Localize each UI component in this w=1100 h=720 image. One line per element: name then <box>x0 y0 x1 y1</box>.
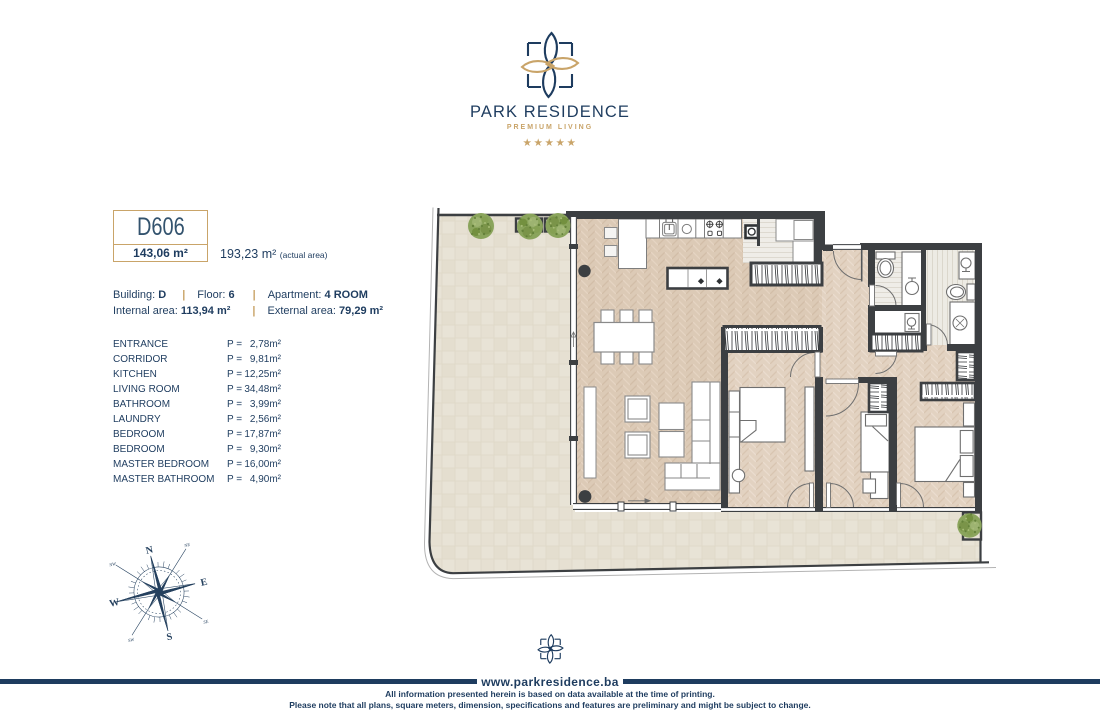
svg-text:W: W <box>109 597 121 610</box>
svg-text:SW: SW <box>128 637 136 644</box>
svg-text:SE: SE <box>203 619 209 625</box>
svg-text:NW: NW <box>109 561 118 568</box>
svg-text:N: N <box>145 544 155 557</box>
svg-text:E: E <box>200 576 209 588</box>
svg-text:NE: NE <box>183 542 191 548</box>
svg-text:S: S <box>166 631 174 643</box>
